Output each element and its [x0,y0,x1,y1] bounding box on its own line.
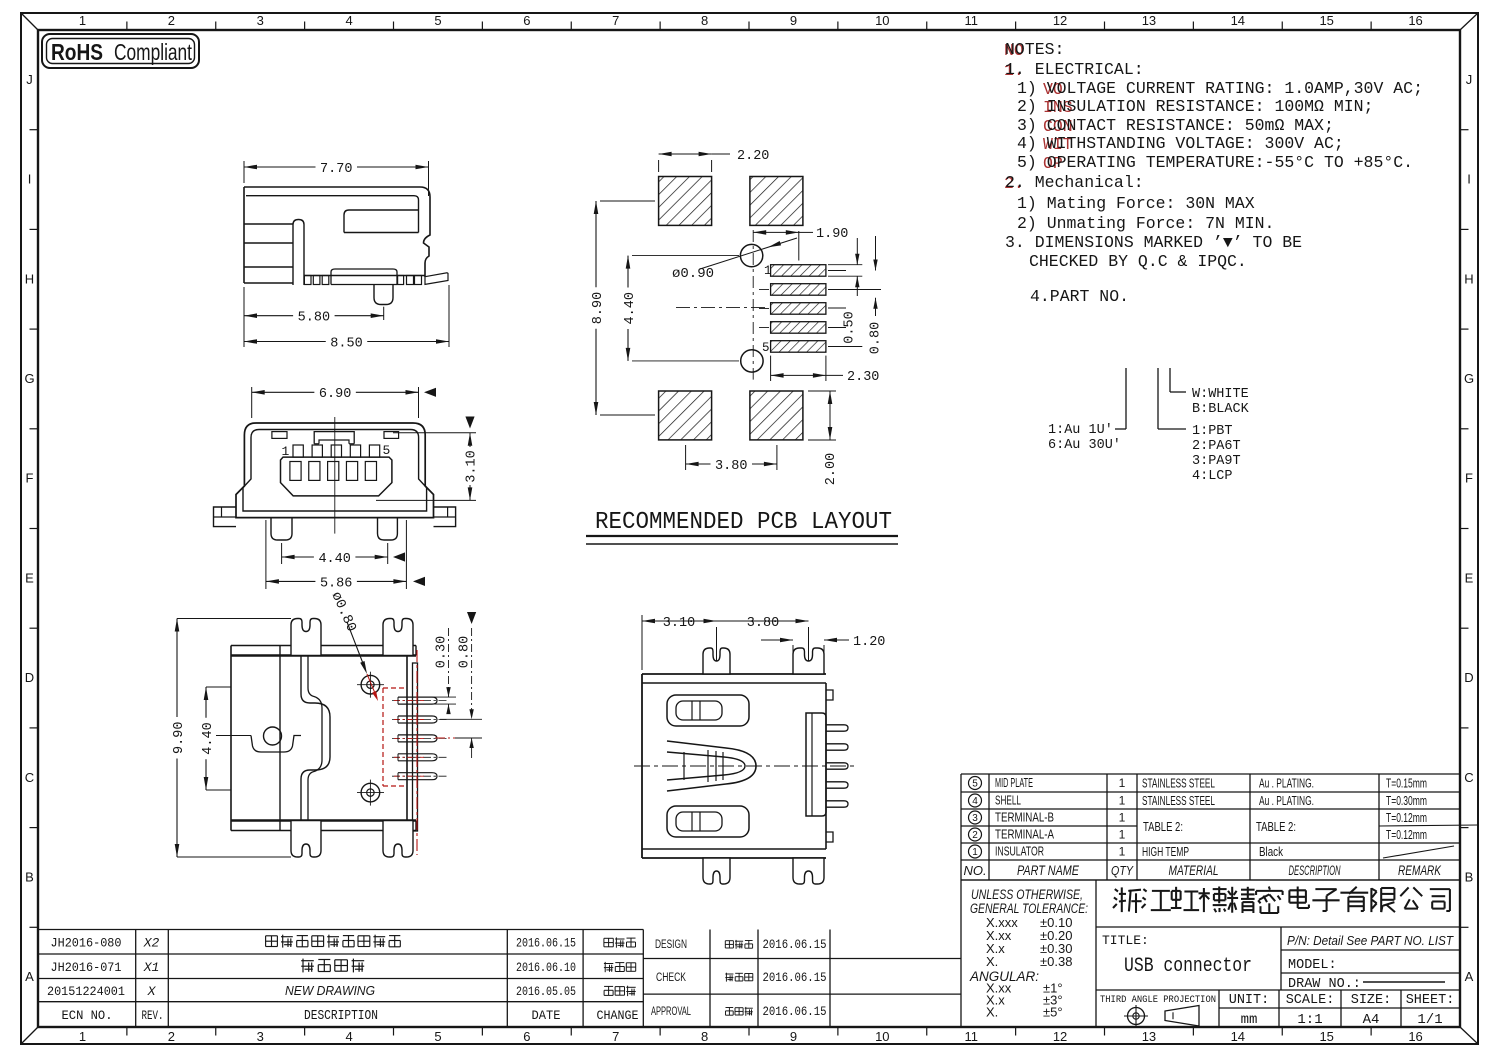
svg-text:3: 3 [257,1029,264,1044]
svg-text:11: 11 [964,1029,978,1044]
svg-text:HIGH TEMP: HIGH TEMP [1142,844,1189,859]
svg-text:5.86: 5.86 [320,576,352,591]
svg-text:9.90: 9.90 [172,722,187,754]
svg-text:DESCRIPTION: DESCRIPTION [1289,862,1341,878]
svg-text:4: 4 [972,796,978,807]
svg-text:ø0.80: ø0.80 [327,590,359,635]
svg-text:NEW DRAWING: NEW DRAWING [285,983,375,998]
svg-text:X2: X2 [143,935,160,950]
svg-text:4: 4 [345,13,352,28]
svg-text:I: I [28,172,32,187]
svg-text:8: 8 [701,1029,708,1044]
svg-text:T=0.12mm: T=0.12mm [1386,810,1427,825]
svg-text:J: J [26,72,33,87]
svg-text:SHELL: SHELL [995,794,1021,808]
svg-text:±5°: ±5° [1043,1005,1063,1020]
svg-text:DESIGN: DESIGN [655,939,687,951]
svg-text:1) VOLTAGE CURRENT RATING: 1.0: 1) VOLTAGE CURRENT RATING: 1.0AMP,30V AC… [1017,79,1423,98]
svg-text:W:WHITE: W:WHITE [1192,387,1249,402]
svg-text:TERMINAL-B: TERMINAL-B [995,811,1054,825]
svg-text:TABLE 2:: TABLE 2: [1143,819,1183,834]
svg-text:10: 10 [875,1029,889,1044]
svg-text:5: 5 [434,1029,441,1044]
svg-text:A: A [25,969,34,984]
svg-text:14: 14 [1231,1029,1245,1044]
svg-text:12: 12 [1053,13,1067,28]
svg-text:A: A [1465,969,1474,984]
svg-text:TERMINAL-A: TERMINAL-A [995,828,1055,842]
svg-text:8.50: 8.50 [330,336,362,351]
svg-text:4:LCP: 4:LCP [1192,469,1233,484]
svg-text:2016.06.15: 2016.06.15 [516,935,576,950]
svg-text:2) Unmating Force: 7N MIN.: 2) Unmating Force: 7N MIN. [1017,214,1274,233]
svg-text:7.70: 7.70 [320,162,352,177]
svg-text:D: D [1464,670,1473,685]
svg-text:1.90: 1.90 [816,227,848,242]
svg-text:15: 15 [1319,13,1333,28]
svg-text:F: F [26,471,34,486]
svg-text:5: 5 [972,779,978,790]
svg-text:0.50: 0.50 [842,311,857,343]
svg-text:1:1: 1:1 [1297,1012,1322,1028]
svg-text:NOTES:: NOTES: [1005,40,1064,59]
svg-text:5: 5 [434,13,441,28]
svg-text:6:Au 30U': 6:Au 30U' [1048,438,1121,453]
svg-text:3.80: 3.80 [715,459,747,474]
svg-text:4.PART NO.: 4.PART NO. [1030,287,1129,306]
svg-text:3: 3 [972,813,978,824]
svg-text:1: 1 [1119,811,1126,825]
svg-text:4) WITHSTANDING VOLTAGE: 300V: 4) WITHSTANDING VOLTAGE: 300V AC; [1017,134,1344,153]
svg-text:2:PA6T: 2:PA6T [1192,439,1241,454]
svg-text:3. DIMENSIONS MARKED ’▼’ TO BE: 3. DIMENSIONS MARKED ’▼’ TO BE [1005,233,1302,252]
svg-text:1: 1 [79,1029,86,1044]
svg-text:13: 13 [1142,1029,1156,1044]
svg-text:12: 12 [1053,1029,1067,1044]
svg-text:1) Mating Force: 30N MAX: 1) Mating Force: 30N MAX [1017,194,1255,213]
svg-text:0.80: 0.80 [869,322,884,354]
svg-text:14: 14 [1231,13,1245,28]
svg-text:B:BLACK: B:BLACK [1192,402,1250,417]
svg-text:2016.06.15: 2016.06.15 [763,937,827,952]
svg-text:GENERAL TOLERANCE:: GENERAL TOLERANCE: [970,901,1088,916]
svg-text:2016.06.10: 2016.06.10 [516,960,576,975]
svg-text:5.80: 5.80 [298,311,330,326]
svg-text:10: 10 [875,13,889,28]
svg-text:1:Au 1U': 1:Au 1U' [1048,423,1113,438]
svg-text:QTY: QTY [1111,863,1134,878]
svg-text:2: 2 [168,13,175,28]
svg-text:3.80: 3.80 [747,616,779,631]
svg-text:F: F [1465,471,1473,486]
svg-text:13: 13 [1142,13,1156,28]
svg-text:1: 1 [972,847,978,858]
svg-text:1: 1 [1119,845,1126,859]
svg-text:1: 1 [1119,828,1126,842]
svg-text:B: B [1465,869,1474,884]
svg-text:Au . PLATING.: Au . PLATING. [1259,793,1314,808]
svg-text:JH2016-071: JH2016-071 [51,960,122,975]
svg-text:6: 6 [523,1029,530,1044]
svg-text:TABLE 2:: TABLE 2: [1256,819,1296,834]
svg-text:T=0.15mm: T=0.15mm [1386,776,1427,791]
svg-text:2.20: 2.20 [737,149,769,164]
svg-text:1. ELECTRICAL:: 1. ELECTRICAL: [1005,60,1144,79]
svg-text:11: 11 [964,13,978,28]
svg-text:REMARK: REMARK [1398,862,1441,878]
svg-text:X.: X. [986,1005,998,1020]
svg-text:C: C [1464,770,1473,785]
svg-text:2016.06.15: 2016.06.15 [763,970,827,985]
svg-text:REV.: REV. [142,1008,164,1023]
svg-text:0.80: 0.80 [458,636,473,668]
svg-text:NO.: NO. [963,863,986,878]
svg-text:STAINLESS STEEL: STAINLESS STEEL [1142,793,1215,808]
svg-text:STAINLESS STEEL: STAINLESS STEEL [1142,776,1215,791]
svg-text:3: 3 [257,13,264,28]
svg-text:8.90: 8.90 [591,292,606,324]
svg-text:Black: Black [1259,844,1283,859]
svg-text:UNLESS OTHERWISE,: UNLESS OTHERWISE, [971,887,1083,902]
svg-text:mm: mm [1241,1012,1258,1028]
svg-text:20151224001: 20151224001 [47,984,125,999]
svg-text:DATE: DATE [532,1008,561,1023]
svg-text:ECN NO.: ECN NO. [62,1008,113,1023]
svg-text:5: 5 [762,341,770,355]
svg-text:X1: X1 [143,960,160,975]
svg-text:D: D [25,670,34,685]
svg-text:2: 2 [972,830,978,841]
svg-text:2. Mechanical:: 2. Mechanical: [1005,173,1144,192]
svg-text:P/N: Detail See PART NO. LIST: P/N: Detail See PART NO. LIST [1287,933,1454,948]
svg-text:3.10: 3.10 [465,450,480,482]
svg-text:X.: X. [986,954,998,969]
svg-text:6.90: 6.90 [319,387,351,402]
svg-text:A4: A4 [1363,1012,1380,1028]
svg-text:RECOMMENDED PCB LAYOUT: RECOMMENDED PCB LAYOUT [595,509,892,536]
svg-text:1/1: 1/1 [1417,1012,1442,1028]
svg-text:H: H [1464,271,1473,286]
svg-text:4.40: 4.40 [201,722,216,754]
svg-text:±0.38: ±0.38 [1040,954,1072,969]
svg-text:1.20: 1.20 [853,635,885,650]
svg-text:16: 16 [1408,1029,1422,1044]
svg-text:SCALE:: SCALE: [1286,993,1335,1008]
svg-text:E: E [1465,570,1474,585]
svg-text:1: 1 [79,13,86,28]
svg-text:0.30: 0.30 [435,636,450,668]
svg-text:1: 1 [1119,794,1126,808]
svg-text:J: J [1466,72,1473,87]
svg-text:2: 2 [168,1029,175,1044]
svg-text:G: G [1464,371,1474,386]
svg-text:4.40: 4.40 [623,292,638,324]
svg-text:JH2016-080: JH2016-080 [51,935,122,950]
svg-text:3) CONTACT RESISTANCE: 50mΩ MA: 3) CONTACT RESISTANCE: 50mΩ MAX; [1017,116,1334,135]
svg-text:SIZE:: SIZE: [1351,993,1392,1008]
svg-text:MODEL:: MODEL: [1288,958,1337,973]
svg-text:3.10: 3.10 [663,616,695,631]
svg-text:X: X [147,984,157,999]
svg-text:SHEET:: SHEET: [1406,993,1455,1008]
svg-text:G: G [24,371,34,386]
svg-text:2.00: 2.00 [824,453,839,485]
svg-text:UNIT:: UNIT: [1229,993,1270,1008]
svg-text:H: H [25,271,34,286]
svg-text:1: 1 [281,444,289,459]
svg-text:MID PLATE: MID PLATE [995,776,1033,790]
svg-text:Au . PLATING.: Au . PLATING. [1259,776,1314,791]
svg-text:1:PBT: 1:PBT [1192,424,1233,439]
svg-text:T=0.12mm: T=0.12mm [1386,827,1427,842]
svg-text:7: 7 [612,1029,619,1044]
svg-text:ø0.90: ø0.90 [672,266,714,282]
svg-text:THIRD ANGLE PROJECTION: THIRD ANGLE PROJECTION [1100,994,1216,1006]
svg-text:E: E [25,570,34,585]
svg-text:CHECKED BY Q.C & IPQC.: CHECKED BY Q.C & IPQC. [1029,252,1247,271]
svg-text:2016.06.15: 2016.06.15 [763,1004,827,1019]
svg-text:5) OPERATING TEMPERATURE:-55°C: 5) OPERATING TEMPERATURE:-55°C TO +85°C. [1017,153,1413,172]
svg-text:16: 16 [1408,13,1422,28]
svg-text:7: 7 [612,13,619,28]
svg-text:TITLE:: TITLE: [1102,933,1149,948]
svg-text:CHECK: CHECK [656,972,686,984]
svg-text:8: 8 [701,13,708,28]
svg-text:USB connector: USB connector [1124,955,1252,978]
svg-text:APPROVAL: APPROVAL [651,1006,691,1018]
svg-text:CHANGE: CHANGE [597,1008,639,1023]
svg-text:C: C [25,770,34,785]
svg-text:INSULATOR: INSULATOR [995,845,1044,859]
svg-text:15: 15 [1319,1029,1333,1044]
svg-text:DESCRIPTION: DESCRIPTION [304,1009,378,1024]
svg-text:I: I [1467,172,1471,187]
svg-text:MATERIAL: MATERIAL [1169,862,1219,878]
svg-text:3:PA9T: 3:PA9T [1192,454,1241,469]
svg-text:1: 1 [1119,776,1126,790]
svg-text:4: 4 [345,1029,352,1044]
svg-text:9: 9 [790,13,797,28]
svg-text:4.40: 4.40 [318,552,350,567]
svg-text:2) INSULATION RESISTANCE: 100M: 2) INSULATION RESISTANCE: 100MΩ MIN; [1017,97,1373,116]
svg-text:9: 9 [790,1029,797,1044]
svg-text:6: 6 [523,13,530,28]
svg-text:2.30: 2.30 [847,370,879,385]
svg-text:B: B [25,869,34,884]
svg-text:PART NAME: PART NAME [1017,862,1080,878]
svg-text:T=0.30mm: T=0.30mm [1386,793,1427,808]
svg-text:5: 5 [382,443,390,458]
svg-text:Compliant: Compliant [114,39,192,65]
svg-text:RoHS: RoHS [51,39,103,65]
svg-text:2016.05.05: 2016.05.05 [516,984,576,999]
